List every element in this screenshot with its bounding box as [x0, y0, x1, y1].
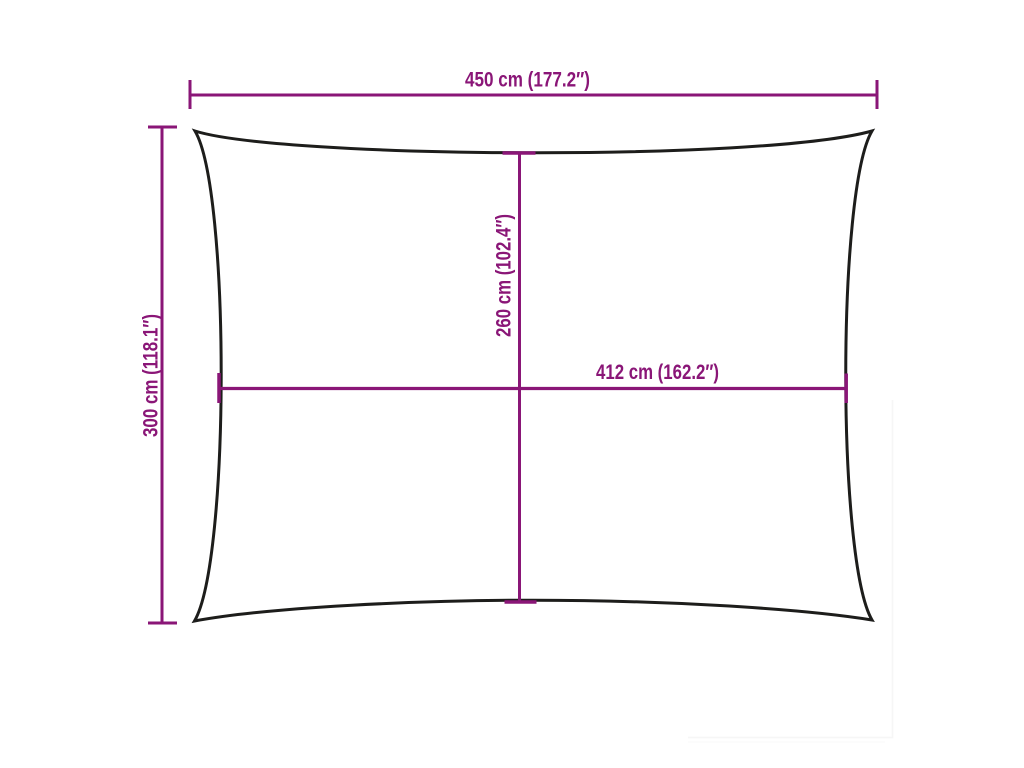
svg-text:412 cm (162.2″): 412 cm (162.2″) [596, 360, 719, 384]
svg-text:450 cm (177.2″): 450 cm (177.2″) [465, 68, 590, 92]
svg-text:300 cm (118.1″): 300 cm (118.1″) [139, 314, 163, 437]
svg-text:260 cm (102.4″): 260 cm (102.4″) [492, 214, 516, 337]
